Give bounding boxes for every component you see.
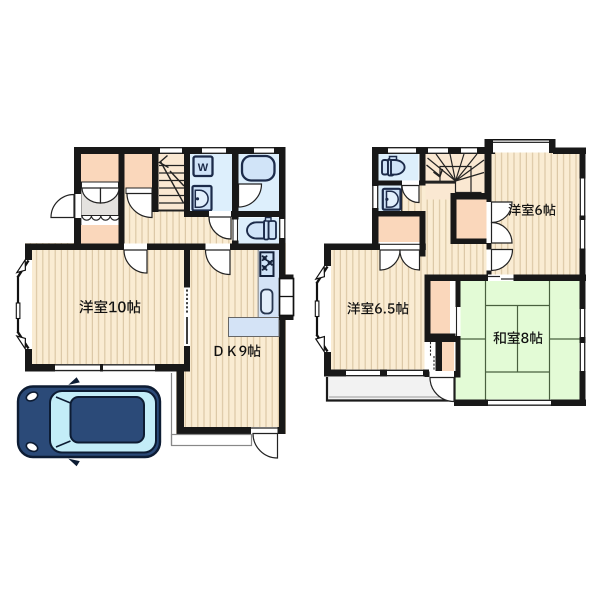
svg-text:W: W (198, 162, 209, 174)
